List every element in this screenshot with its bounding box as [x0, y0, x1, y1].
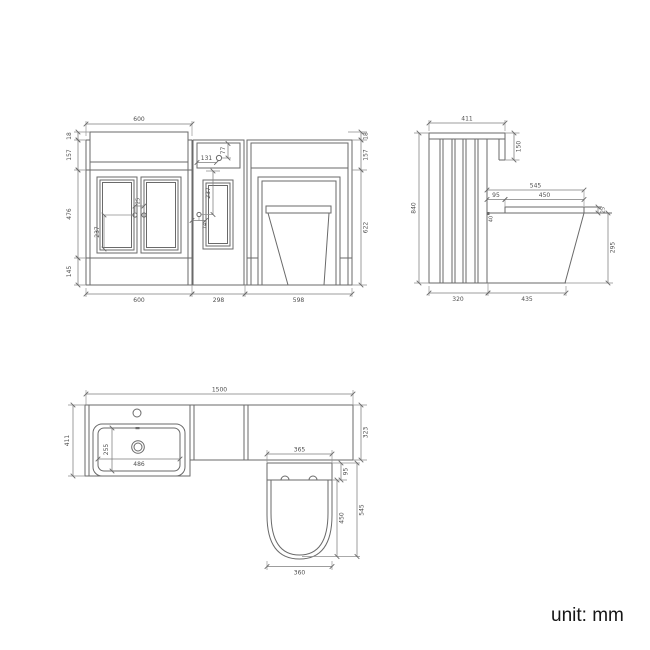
plan-wc-run: [190, 405, 353, 460]
dim-side-base-depth: 320: [452, 296, 464, 303]
basin-overflow: [136, 427, 140, 429]
dim-side-seat-length: 450: [539, 192, 551, 199]
dim-side-unit-height: 840: [411, 202, 418, 214]
dim-front-mid-width: 298: [213, 297, 225, 304]
dim-side-pan-gap: 95: [492, 192, 500, 199]
dim-front-top-width: 600: [133, 116, 145, 123]
dim-plan-run-depth: 323: [363, 427, 370, 439]
plan-seat-outer: [267, 480, 332, 559]
side-elevation-view: 411 150 840 545 95 450 25 40 295 320 435: [411, 116, 617, 304]
dim-plan-basin-width: 486: [133, 461, 145, 468]
side-dimension-lines: [419, 123, 608, 293]
side-worktop-return: [499, 139, 505, 160]
plan-view: 1500 411 255 486 323 365 95 450 545 360: [64, 387, 370, 577]
dim-flush-offset-v: 77: [220, 147, 227, 155]
dim-side-pan-depth: 435: [521, 296, 533, 303]
side-geometry: [429, 133, 612, 283]
side-worktop: [429, 133, 505, 139]
front-elevation-view: 600 18 157 476 145 18 157 622 600 298 59…: [66, 116, 370, 304]
dim-mid-handle-offset: 74: [203, 223, 209, 229]
dim-side-top-depth: 411: [461, 116, 473, 123]
dim-front-door-zone: 476: [66, 208, 73, 220]
plan-geometry: [85, 405, 353, 559]
dim-front-right-thk: 18: [363, 132, 370, 140]
basin-waste-inner: [134, 443, 142, 451]
right-door-panel: [147, 183, 176, 248]
dim-front-plinth: 145: [66, 266, 73, 278]
dim-front-right-band: 157: [363, 149, 370, 161]
dim-plan-basin-depth: 255: [103, 444, 110, 456]
dim-plan-total-width: 1500: [212, 387, 227, 394]
wc-pan-front: [266, 206, 331, 285]
front-geometry: [86, 132, 352, 285]
vanity-worktop: [90, 132, 188, 162]
vanity-wc-technical-drawing: 600 18 157 476 145 18 157 622 600 298 59…: [0, 0, 650, 650]
dim-plan-pan-projection: 545: [359, 504, 366, 516]
dim-front-body-height: 622: [363, 222, 370, 234]
plan-seat-inner: [271, 480, 328, 555]
dim-side-worktop-return: 150: [516, 141, 523, 153]
dim-side-seat-thickness: 25: [601, 207, 607, 213]
side-panel-slats: [440, 139, 478, 283]
dim-front-top-band: 157: [66, 149, 73, 161]
dim-plan-seat-bottom-width: 360: [294, 570, 306, 577]
pan-joint-marker: [487, 212, 490, 215]
side-toilet-pan: [487, 207, 612, 283]
side-toilet-seat: [505, 207, 584, 213]
right-door-frame: [144, 180, 178, 250]
dim-flush-offset-h: 131: [201, 155, 213, 162]
side-extension-lines: [414, 120, 613, 296]
dim-side-pan-projection: 545: [530, 183, 542, 190]
dim-handle-spacing: 25: [136, 198, 142, 204]
plan-seat-hinges: [281, 476, 317, 480]
flush-button: [216, 155, 221, 160]
dim-front-worktop-thk: 18: [66, 132, 73, 140]
dim-plan-seat-offset: 95: [343, 468, 350, 476]
plan-run-dividers: [194, 405, 248, 460]
technical-drawing-canvas: 600 18 157 476 145 18 157 622 600 298 59…: [0, 0, 650, 650]
dim-mid-door-height: 237: [205, 187, 212, 199]
dim-plan-seat-length: 450: [339, 512, 346, 524]
mid-door-handle: [197, 212, 201, 216]
wc-unit-top-band: [251, 143, 348, 168]
dim-left-door-height: 237: [94, 226, 101, 238]
dim-plan-vanity-depth: 411: [64, 435, 71, 447]
dim-side-joint-gap: 40: [489, 216, 495, 222]
plan-toilet-cistern-edge: [267, 463, 332, 480]
dim-front-vanity-width: 600: [133, 297, 145, 304]
tap-hole: [133, 409, 141, 417]
unit-label: unit: mm: [551, 605, 624, 627]
dim-plan-seat-top-width: 365: [294, 447, 306, 454]
dim-front-wc-width: 598: [293, 297, 305, 304]
dim-side-pan-front-height: 295: [610, 242, 617, 254]
